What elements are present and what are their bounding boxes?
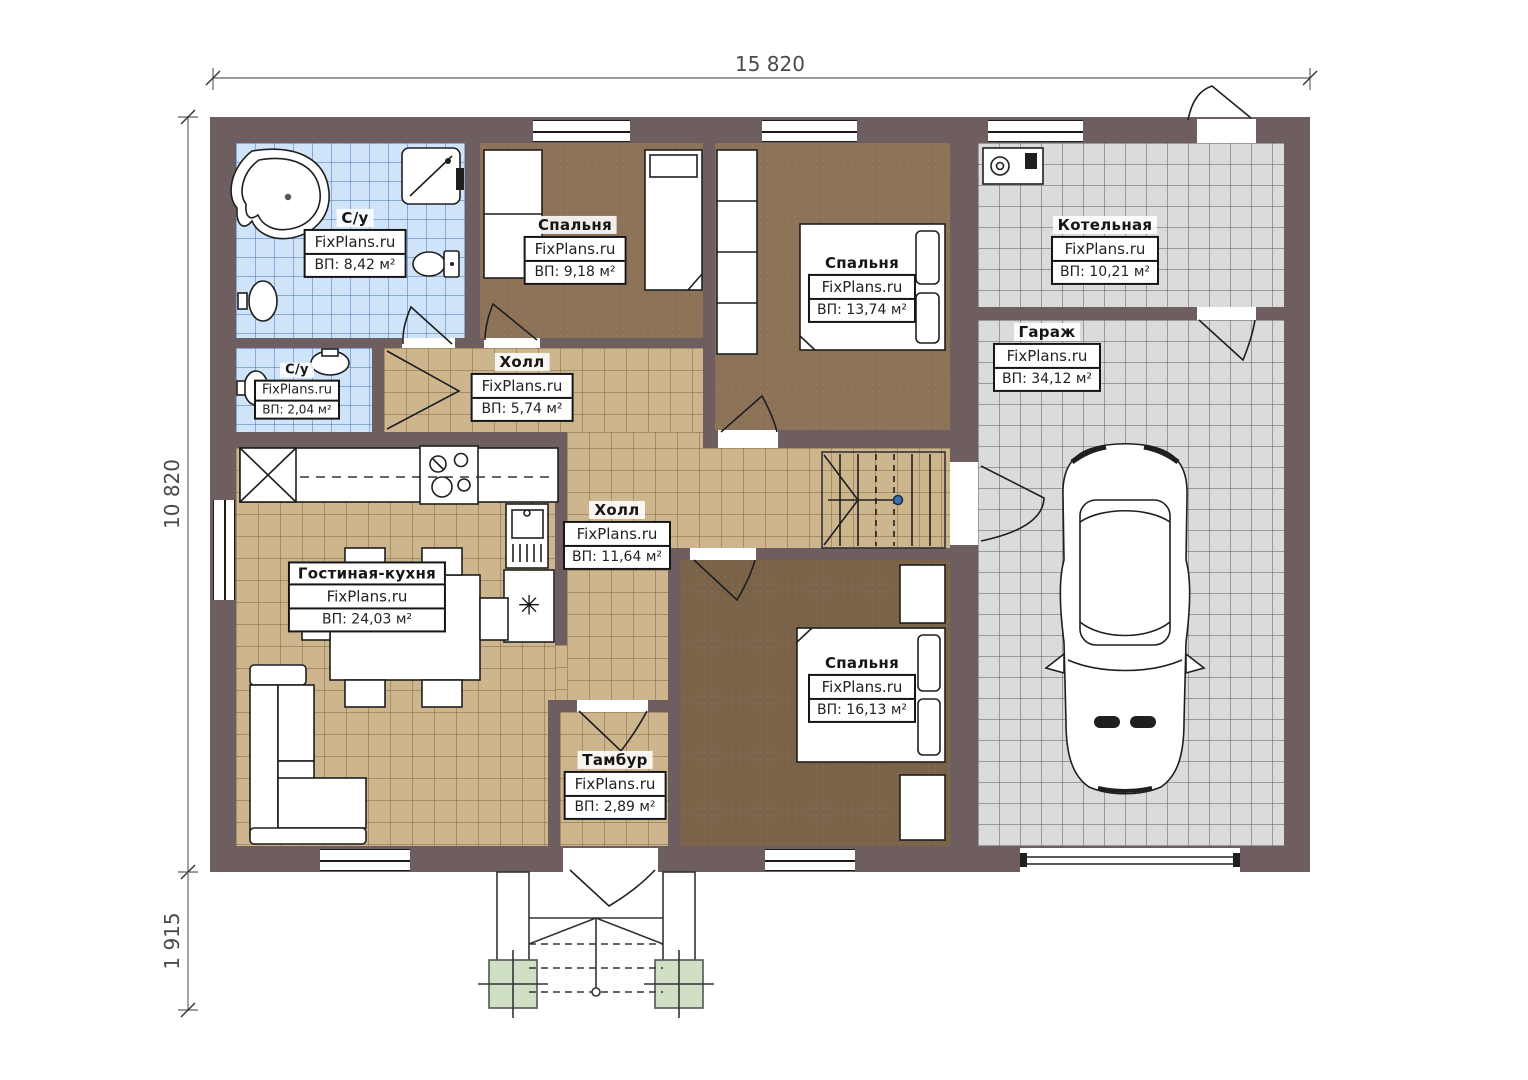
wall-v5 xyxy=(668,560,680,846)
door-swing-boiler-exterior xyxy=(1188,86,1251,120)
wall-boiler-garage-b xyxy=(1256,307,1284,320)
door-gap-bedroom1 xyxy=(484,338,540,348)
room-living-kitchen-floor xyxy=(236,448,555,846)
window-bottom-bedroom3 xyxy=(765,849,855,871)
watermark: FixPlans.ru xyxy=(810,276,914,300)
room-label-bath-main: С/у FixPlans.ru ВП: 8,42 м² xyxy=(304,208,407,278)
wall-tambur-top-a xyxy=(548,700,577,712)
wall-boiler-garage-a xyxy=(978,307,1197,320)
door-gap-bedroom3 xyxy=(690,548,756,560)
room-label-bath-small: С/у FixPlans.ru ВП: 2,04 м² xyxy=(254,359,340,420)
floor-plan-canvas: ✳ 15 820 10 820 1 915 С/у FixPlans.ru ВП… xyxy=(0,0,1528,1080)
wall-v6 xyxy=(703,143,715,430)
door-gap-entrance xyxy=(563,848,658,872)
watermark: FixPlans.ru xyxy=(526,238,625,262)
window-top-bedroom2 xyxy=(762,120,857,142)
dimension-left-label: 10 820 xyxy=(160,459,184,529)
watermark: FixPlans.ru xyxy=(473,375,572,399)
wall-h1 xyxy=(236,338,703,348)
room-label-bedroom3: Спальня FixPlans.ru ВП: 16,13 м² xyxy=(808,653,916,723)
watermark: FixPlans.ru xyxy=(810,676,914,700)
watermark: FixPlans.ru xyxy=(995,345,1099,369)
porch xyxy=(478,872,714,1018)
room-label-bedroom1: Спальня FixPlans.ru ВП: 9,18 м² xyxy=(524,215,627,285)
door-gap-bath-main xyxy=(402,338,455,348)
window-left-living xyxy=(213,500,235,600)
fridge-snowflake-symbol: ✳ xyxy=(518,591,541,622)
room-label-hall-small: Холл FixPlans.ru ВП: 5,74 м² xyxy=(471,352,574,422)
dimension-porch-label: 1 915 xyxy=(160,912,184,969)
wall-tambur-left xyxy=(548,712,560,846)
room-label-bedroom2: Спальня FixPlans.ru ВП: 13,74 м² xyxy=(808,253,916,323)
hall-connector-floor xyxy=(567,432,703,448)
watermark: FixPlans.ru xyxy=(566,773,665,797)
room-label-garage: Гараж FixPlans.ru ВП: 34,12 м² xyxy=(993,322,1101,392)
room-label-living-kitchen: Гостиная-кухня FixPlans.ru ВП: 24,03 м² xyxy=(288,561,446,632)
door-gap-boiler-garage xyxy=(1197,307,1256,320)
door-gap-hall-garage xyxy=(950,462,978,545)
watermark: FixPlans.ru xyxy=(256,382,338,402)
room-label-hall-big: Холл FixPlans.ru ВП: 11,64 м² xyxy=(563,500,671,570)
garage-gate-gap xyxy=(1020,848,1240,872)
watermark: FixPlans.ru xyxy=(565,523,669,547)
room-label-boiler: Котельная FixPlans.ru ВП: 10,21 м² xyxy=(1051,215,1159,285)
room-label-tambur: Тамбур FixPlans.ru ВП: 2,89 м² xyxy=(564,750,667,820)
wall-garage-west-b xyxy=(950,545,978,846)
wall-v1 xyxy=(465,143,480,338)
door-gap-tambur xyxy=(577,700,648,712)
wall-garage-west-a xyxy=(950,143,978,462)
window-top-bedroom1 xyxy=(533,120,630,142)
wall-v2 xyxy=(372,348,384,432)
window-bottom-living xyxy=(320,849,410,871)
door-gap-boiler-exterior xyxy=(1197,119,1256,143)
watermark: FixPlans.ru xyxy=(1053,238,1157,262)
wall-tambur-top-b xyxy=(648,700,668,712)
watermark: FixPlans.ru xyxy=(306,231,405,255)
watermark: FixPlans.ru xyxy=(290,585,444,609)
dimension-top-label: 15 820 xyxy=(735,52,805,76)
wall-h2 xyxy=(236,432,555,448)
room-garage-floor xyxy=(978,320,1284,846)
door-swing-entrance xyxy=(570,870,655,906)
door-gap-bedroom2 xyxy=(718,430,778,448)
window-top-boiler xyxy=(988,120,1083,142)
corridor-floor xyxy=(567,548,668,700)
